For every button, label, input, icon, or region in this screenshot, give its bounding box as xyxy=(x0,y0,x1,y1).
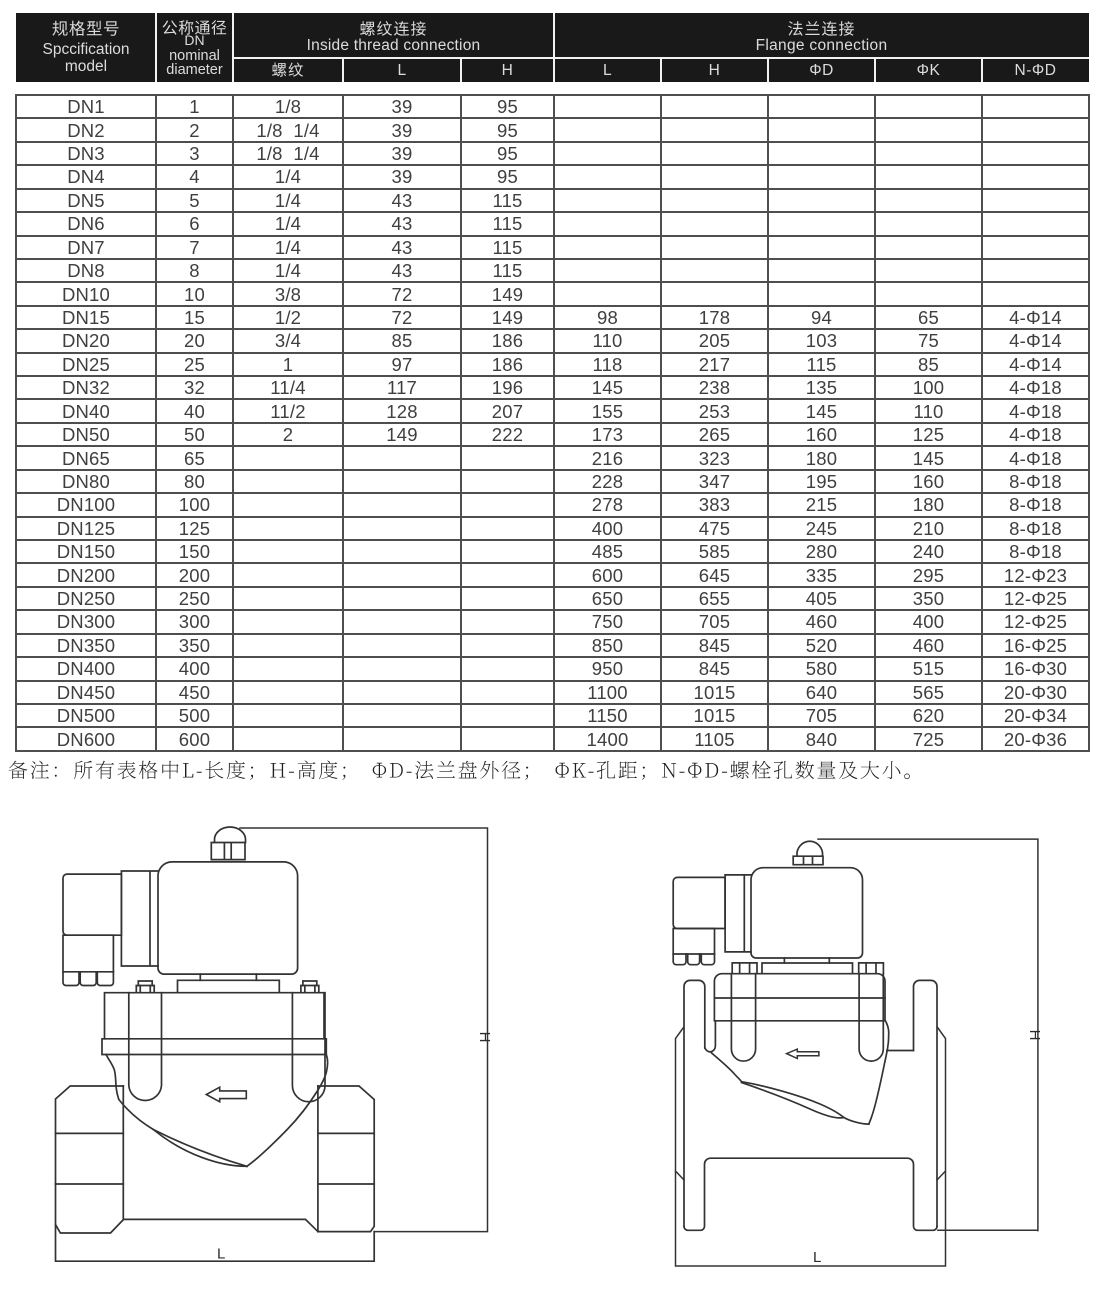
svg-text:L: L xyxy=(217,1246,225,1263)
svg-text:L: L xyxy=(813,1249,821,1266)
svg-text:H: H xyxy=(1026,1030,1043,1041)
svg-text:H: H xyxy=(476,1032,493,1043)
